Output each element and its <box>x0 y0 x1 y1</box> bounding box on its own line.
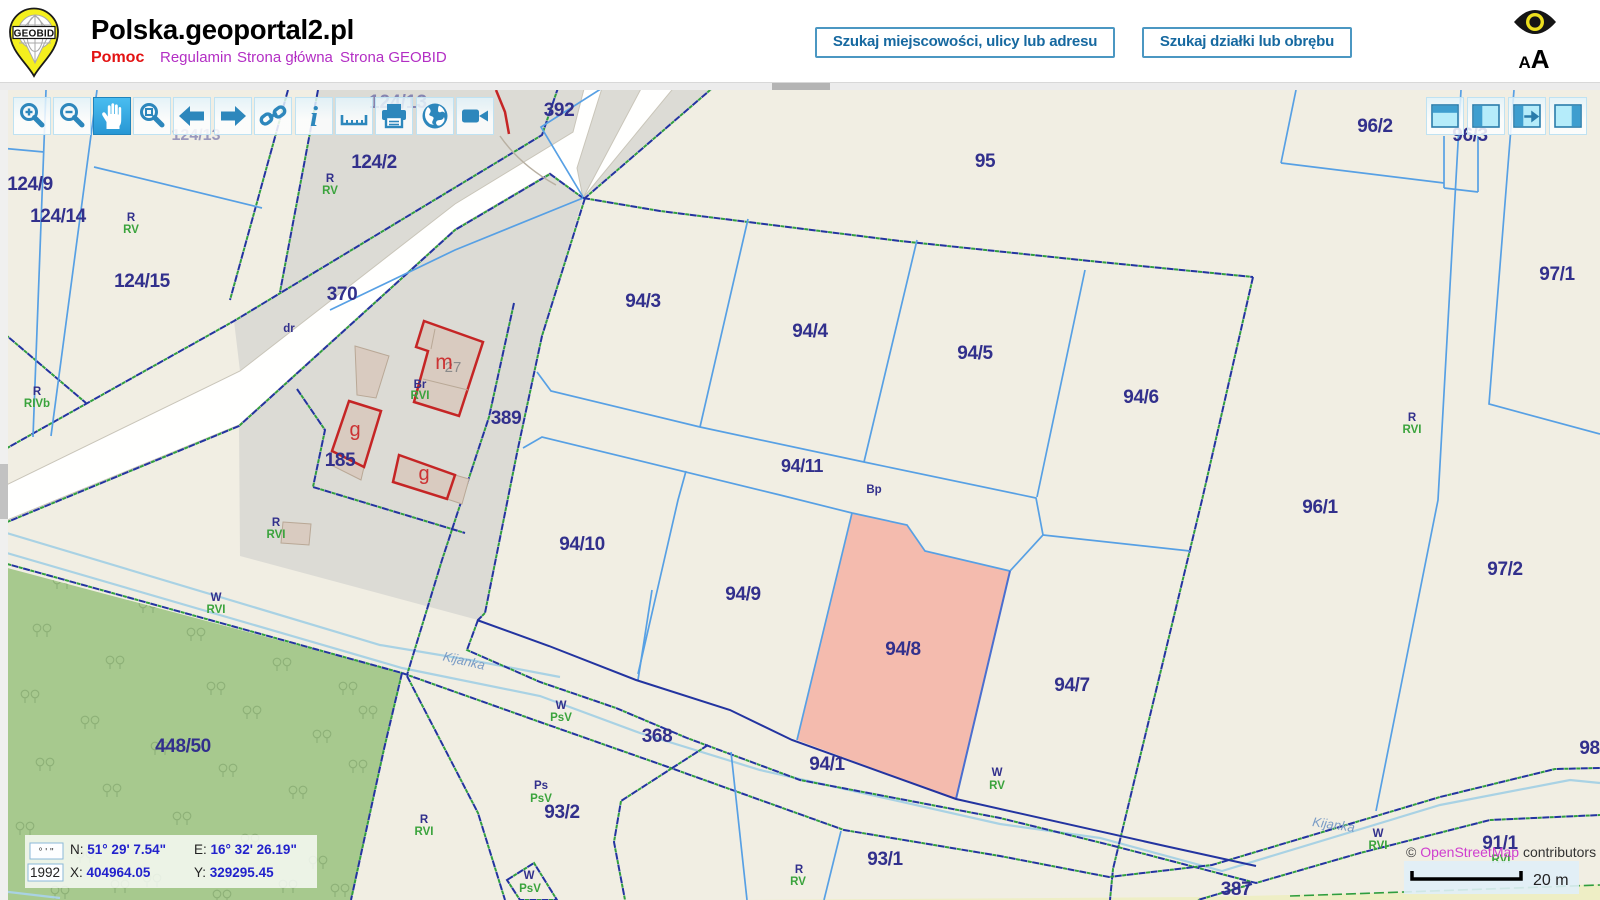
svg-text:124/14: 124/14 <box>30 206 87 227</box>
svg-text:° ' ": ° ' " <box>38 847 53 858</box>
svg-text:dr: dr <box>283 323 295 335</box>
svg-text:Bp: Bp <box>866 484 881 496</box>
svg-text:Ps: Ps <box>534 780 548 792</box>
svg-text:93/1: 93/1 <box>867 849 903 870</box>
svg-text:W: W <box>1373 828 1384 840</box>
svg-text:RIVb: RIVb <box>24 398 50 410</box>
svg-text:389: 389 <box>491 408 522 429</box>
svg-text:94/4: 94/4 <box>792 321 828 342</box>
svg-text:RVI: RVI <box>267 529 286 541</box>
svg-text:96/1: 96/1 <box>1302 497 1338 518</box>
svg-text:RVI: RVI <box>1369 840 1388 852</box>
svg-text:94/5: 94/5 <box>957 343 993 364</box>
svg-text:R: R <box>326 173 335 185</box>
svg-text:RV: RV <box>322 185 338 197</box>
svg-text:1992: 1992 <box>30 865 60 880</box>
svg-text:RVI: RVI <box>411 390 430 402</box>
svg-text:124/2: 124/2 <box>351 152 397 173</box>
svg-text:94/11: 94/11 <box>781 456 823 476</box>
svg-text:N: 51° 29' 7.54": N: 51° 29' 7.54" <box>70 842 166 857</box>
svg-text:R: R <box>33 386 42 398</box>
svg-text:124/9: 124/9 <box>7 174 53 195</box>
svg-text:R: R <box>272 517 281 529</box>
svg-text:448/50: 448/50 <box>155 736 211 757</box>
svg-text:m: m <box>435 351 453 374</box>
svg-text:93/2: 93/2 <box>544 802 579 823</box>
svg-text:368: 368 <box>642 726 673 747</box>
svg-text:94/10: 94/10 <box>559 534 605 555</box>
svg-text:i: i <box>310 101 318 131</box>
svg-text:W: W <box>556 700 567 712</box>
svg-text:98/: 98/ <box>1579 738 1600 759</box>
svg-text:R: R <box>420 814 429 826</box>
svg-text:387: 387 <box>1221 879 1252 900</box>
svg-text:20 m: 20 m <box>1533 872 1569 889</box>
svg-text:PsV: PsV <box>530 793 552 805</box>
svg-text:PsV: PsV <box>519 883 541 895</box>
svg-text:R: R <box>1408 412 1417 424</box>
svg-text:370: 370 <box>327 284 358 305</box>
svg-text:Y: 329295.45: Y: 329295.45 <box>194 865 274 880</box>
svg-text:© OpenStreetMap contributors: © OpenStreetMap contributors <box>1406 844 1596 860</box>
svg-text:185: 185 <box>325 450 356 471</box>
svg-text:RVI: RVI <box>207 604 226 616</box>
svg-text:W: W <box>992 767 1003 779</box>
svg-text:PsV: PsV <box>550 712 572 724</box>
svg-text:94/6: 94/6 <box>1123 387 1158 408</box>
svg-text:RVI: RVI <box>1403 424 1422 436</box>
svg-text:RV: RV <box>989 780 1005 792</box>
svg-text:X: 404964.05: X: 404964.05 <box>70 865 151 880</box>
svg-text:94/8: 94/8 <box>885 639 920 660</box>
svg-text:94/7: 94/7 <box>1054 675 1089 696</box>
svg-text:94/1: 94/1 <box>809 754 845 775</box>
svg-text:95: 95 <box>975 151 996 172</box>
svg-text:R: R <box>795 864 804 876</box>
svg-text:97/2: 97/2 <box>1487 559 1522 580</box>
svg-text:RV: RV <box>123 224 139 236</box>
svg-text:124/15: 124/15 <box>114 271 171 292</box>
svg-text:R: R <box>127 212 136 224</box>
svg-text:RVI: RVI <box>415 826 434 838</box>
svg-text:97/1: 97/1 <box>1539 264 1575 285</box>
svg-text:E: 16° 32' 26.19": E: 16° 32' 26.19" <box>194 842 297 857</box>
svg-text:392: 392 <box>544 100 575 121</box>
svg-text:96/2: 96/2 <box>1357 116 1392 137</box>
svg-text:g: g <box>418 463 429 485</box>
svg-text:94/3: 94/3 <box>625 291 660 312</box>
svg-text:94/9: 94/9 <box>725 584 760 605</box>
svg-text:W: W <box>211 592 222 604</box>
svg-text:GEOBID: GEOBID <box>14 29 55 40</box>
svg-text:RV: RV <box>790 876 806 888</box>
svg-text:W: W <box>524 870 535 882</box>
svg-text:g: g <box>349 419 360 441</box>
